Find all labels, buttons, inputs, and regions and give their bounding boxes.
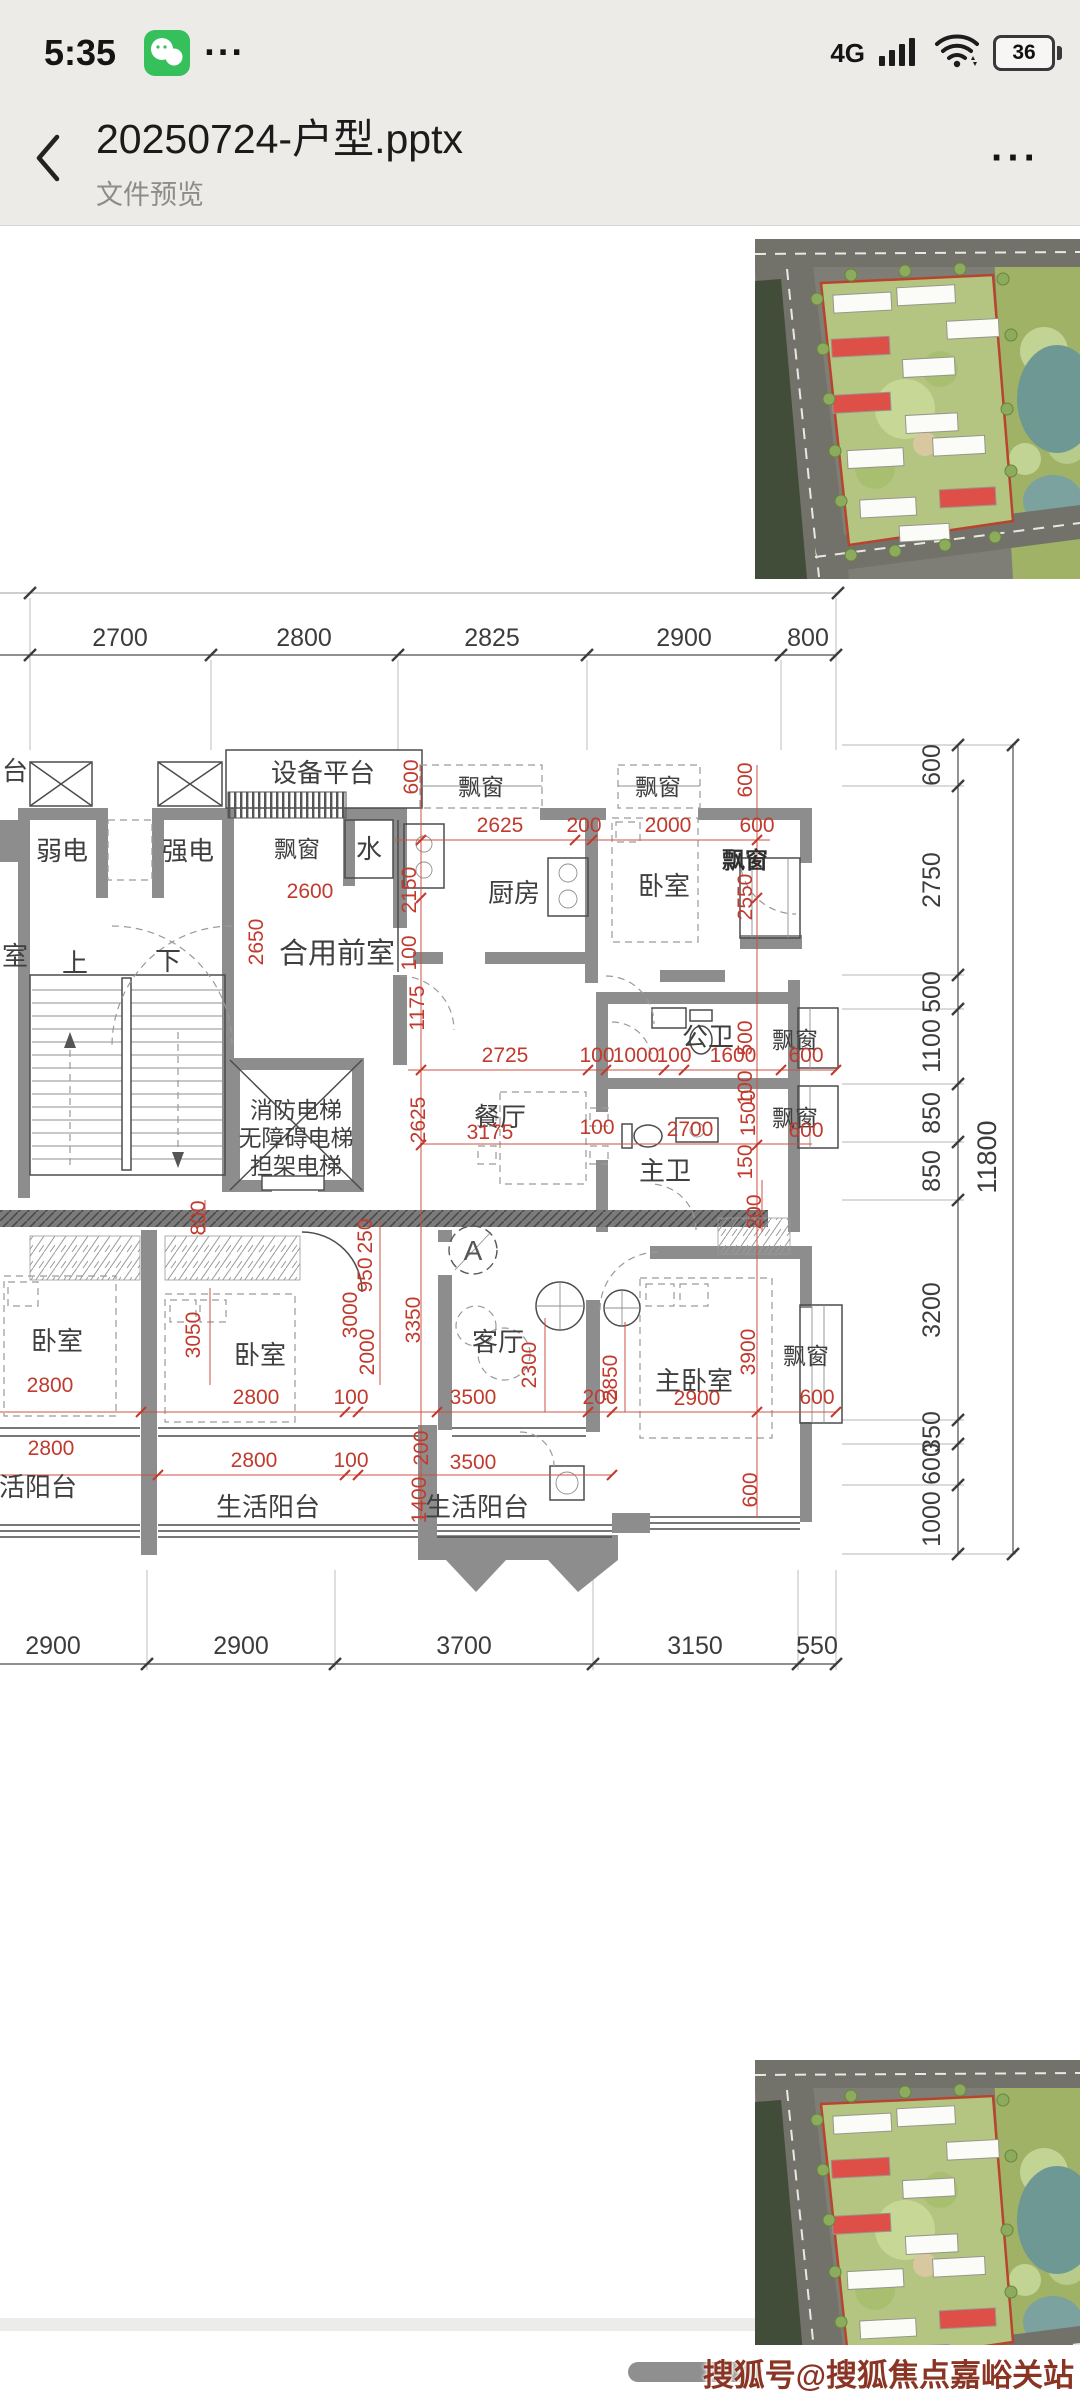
dim-top: 2900	[656, 624, 712, 652]
room-label-balcony: 生活阳台	[0, 1472, 77, 1502]
red-dim: 1175	[406, 985, 429, 1030]
red-dim: 2650	[245, 919, 268, 966]
red-dim: 200	[410, 1430, 433, 1465]
red-dim: 2900	[674, 1387, 721, 1410]
battery-icon: 36	[993, 35, 1062, 71]
room-label-balcony: 生活阳台	[216, 1492, 320, 1522]
chevron-left-icon	[30, 129, 66, 187]
dim-top: 2800	[276, 624, 332, 652]
dim-right: 1000	[918, 1491, 946, 1547]
red-dim: 800	[187, 1200, 210, 1235]
red-dim: 2800	[233, 1386, 280, 1409]
room-label-living: 客厅	[472, 1327, 524, 1357]
red-dim: 2700	[667, 1118, 714, 1141]
status-more-icon: ···	[204, 43, 245, 63]
red-dim: 2800	[28, 1437, 75, 1460]
clock-text: 5:35	[44, 32, 116, 74]
dim-top: 2825	[464, 624, 520, 652]
dim-bottom: 2900	[213, 1632, 269, 1660]
dim-top: 800	[787, 624, 829, 652]
red-dim: 2000	[645, 814, 692, 837]
room-label-bay-window: 飘窗	[458, 774, 504, 800]
status-bar: 5:35 ··· 4G 36	[0, 0, 1080, 92]
room-label-balcony: 生活阳台	[425, 1492, 529, 1522]
room-label-master-bath: 主卫	[639, 1156, 691, 1186]
section-marker-label: A	[464, 1235, 483, 1266]
red-dim: 100	[333, 1386, 368, 1409]
dim-right: 850	[918, 1092, 946, 1134]
dim-right: 1100	[918, 1019, 946, 1073]
room-label-elevator-2: 无障碍电梯	[239, 1125, 354, 1151]
sheet-lines	[0, 587, 844, 599]
room-label-bay-window: 飘窗	[635, 774, 681, 800]
dim-bottom: 3700	[436, 1632, 492, 1660]
room-label-bay-window: 飘窗	[274, 836, 320, 862]
red-dim: 600	[788, 1119, 823, 1142]
menu-button[interactable]: ···	[991, 148, 1040, 168]
dim-right: 500	[918, 971, 946, 1013]
red-dim: 950	[354, 1257, 377, 1292]
wechat-icon	[144, 30, 190, 76]
red-dim: 2725	[482, 1044, 529, 1067]
room-label-room-partial: 室	[2, 941, 28, 971]
red-dim: 2600	[287, 880, 334, 903]
plan-walls	[0, 808, 812, 1592]
red-dim: 600	[739, 814, 774, 837]
red-dim: 2550	[734, 874, 757, 921]
stair-up-label: 上	[62, 948, 88, 978]
dim-bottom: 3150	[667, 1632, 723, 1660]
red-dim: 250	[354, 1218, 377, 1253]
red-dim: 100	[579, 1116, 614, 1139]
red-dim: 2150	[398, 867, 421, 914]
site-plan-thumbnail-bottom	[755, 2060, 1080, 2345]
watermark-text: 搜狐号@搜狐焦点嘉峪关站	[703, 2350, 1074, 2395]
hatched-wall	[0, 1210, 768, 1227]
room-label-equipment-platform: 设备平台	[271, 758, 375, 788]
room-label-bedroom: 卧室	[234, 1340, 286, 1370]
red-dim: 2800	[231, 1449, 278, 1472]
red-dim: 1000	[613, 1044, 660, 1067]
red-dim: 100	[656, 1044, 691, 1067]
room-label-bedroom: 卧室	[31, 1326, 83, 1356]
red-dim: 2625	[477, 814, 524, 837]
room-label-bay-window: 飘窗	[722, 847, 768, 873]
dim-right: 600	[918, 744, 946, 786]
red-dim: 3175	[467, 1121, 514, 1144]
red-dim: 3900	[737, 1329, 760, 1376]
red-dim: 600	[739, 1472, 762, 1507]
red-dim: 600	[400, 759, 423, 794]
dim-right: 850	[918, 1150, 946, 1192]
signal-bars-icon	[877, 34, 921, 73]
red-dim: 2850	[599, 1355, 622, 1402]
dim-right: 600	[918, 1443, 946, 1485]
room-label-elevator-3: 担架电梯	[250, 1153, 342, 1179]
red-dim: 200	[566, 814, 601, 837]
room-label-shared-front-room: 合用前室	[279, 937, 395, 970]
red-dim: 2000	[356, 1329, 379, 1376]
red-dim: 2800	[27, 1374, 74, 1397]
preview-header: 20250724-户型.pptx 文件预览 ···	[0, 92, 1080, 224]
red-dim: 150	[734, 1144, 757, 1179]
red-dim: 100	[398, 935, 421, 970]
preview-subtitle: 文件预览	[96, 173, 463, 212]
network-type-label: 4G	[830, 38, 865, 69]
red-dim: 3500	[450, 1386, 497, 1409]
floor-plan-drawing: 2700 2800 2825 2900 800 2900 2900 3700 3…	[0, 420, 1080, 1720]
back-button[interactable]	[30, 129, 66, 187]
red-dim: 3500	[450, 1451, 497, 1474]
red-dim: 100	[734, 1070, 757, 1105]
slide-bottom-edge	[0, 2318, 755, 2331]
red-dim: 3350	[402, 1297, 425, 1344]
red-dim: 600	[799, 1386, 834, 1409]
red-dim: 100	[333, 1449, 368, 1472]
stair-down-label: 下	[155, 946, 181, 976]
room-label-kitchen: 厨房	[488, 878, 540, 908]
site-plan-thumbnail-top	[755, 238, 1080, 580]
battery-level: 36	[1012, 41, 1035, 65]
room-label-elevator-1: 消防电梯	[250, 1097, 342, 1123]
red-dim: 600	[734, 762, 757, 797]
dim-bottom: 2900	[25, 1632, 81, 1660]
red-dim: 1400	[408, 1477, 431, 1524]
red-dim: 2300	[518, 1342, 541, 1389]
room-label-platform-partial: 台	[2, 756, 28, 786]
wifi-icon	[933, 32, 981, 75]
room-label-weak-electric: 弱电	[36, 836, 88, 866]
red-dim: 2625	[407, 1097, 430, 1144]
dim-bottom: 550	[796, 1632, 838, 1660]
room-label-strong-electric: 强电	[162, 836, 214, 866]
dim-right: 2750	[918, 852, 946, 908]
file-title: 20250724-户型.pptx	[96, 105, 463, 165]
room-label-water: 水	[356, 834, 382, 864]
dim-right: 3200	[918, 1282, 946, 1338]
red-dim: 100	[579, 1044, 614, 1067]
dim-right-total: 11800	[972, 1120, 1002, 1193]
room-label-bedroom: 卧室	[638, 871, 690, 901]
red-dim: 200	[743, 1194, 766, 1229]
red-dim: 3050	[182, 1312, 205, 1359]
room-label-bay-window: 飘窗	[783, 1343, 829, 1369]
red-dim: 600	[788, 1044, 823, 1067]
red-dim: 500	[734, 1020, 757, 1055]
dim-top: 2700	[92, 624, 148, 652]
